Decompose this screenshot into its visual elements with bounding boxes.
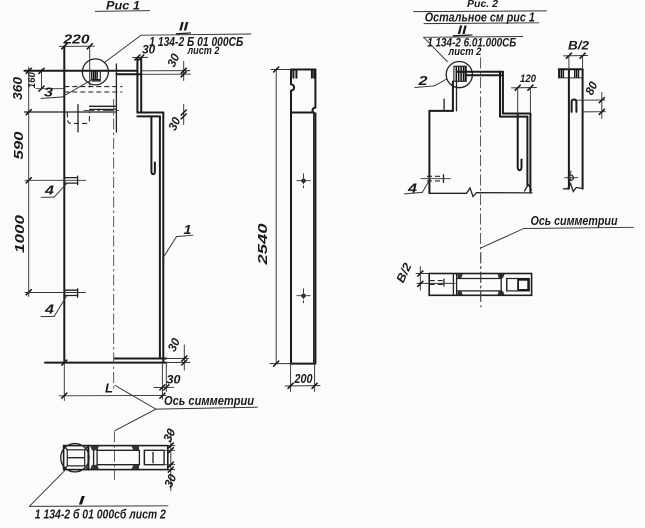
svg-text:L: L [105, 381, 113, 396]
svg-text:Остальное см рис 1: Остальное см рис 1 [425, 10, 535, 24]
svg-text:4: 4 [44, 302, 55, 317]
svg-text:2540: 2540 [255, 222, 270, 266]
svg-text:360: 360 [10, 76, 25, 100]
svg-text:1000: 1000 [12, 214, 27, 253]
svg-text:II: II [179, 20, 189, 34]
svg-text:120: 120 [520, 73, 537, 85]
svg-text:30: 30 [167, 373, 181, 387]
svg-text:Ось симметрии: Ось симметрии [164, 393, 254, 408]
svg-text:B/2: B/2 [568, 39, 589, 53]
svg-text:1 134-2 б 01 000сб лист 2: 1 134-2 б 01 000сб лист 2 [35, 507, 167, 522]
svg-text:лист 2: лист 2 [187, 45, 220, 57]
svg-text:160: 160 [26, 72, 38, 88]
svg-text:Ось симметрии: Ось симметрии [531, 213, 618, 228]
svg-text:1: 1 [184, 222, 192, 237]
svg-text:лист 2: лист 2 [448, 46, 482, 58]
svg-text:4: 4 [44, 183, 55, 198]
svg-text:2: 2 [417, 73, 428, 88]
svg-text:590: 590 [11, 131, 26, 160]
svg-text:Рис. 2: Рис. 2 [467, 0, 498, 10]
svg-text:200: 200 [294, 372, 313, 386]
